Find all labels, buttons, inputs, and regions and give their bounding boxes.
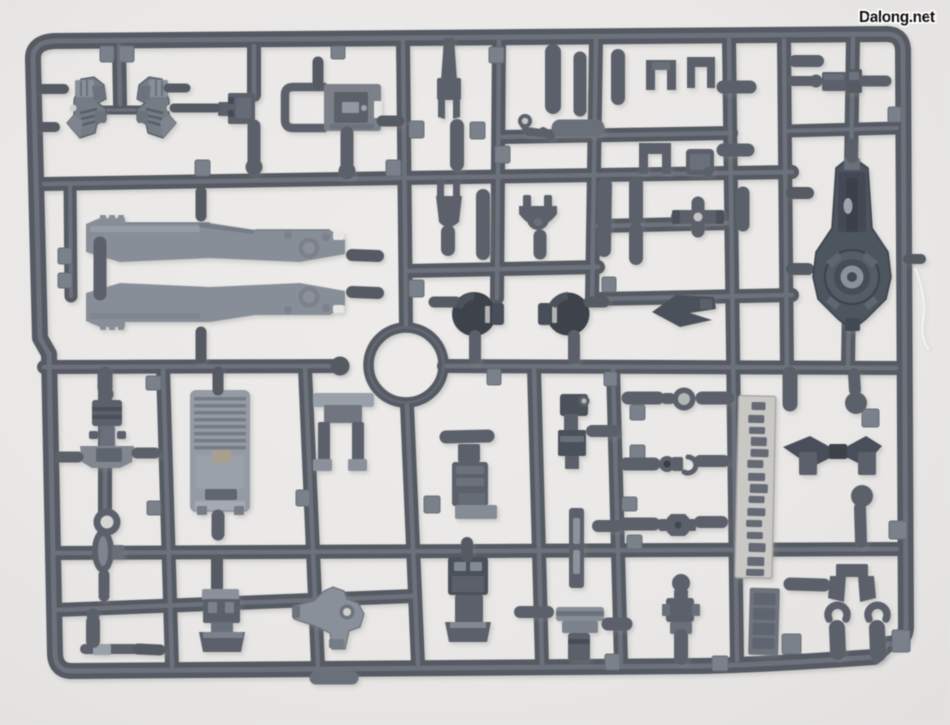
svg-text:Dalong.net: Dalong.net [859,9,935,26]
